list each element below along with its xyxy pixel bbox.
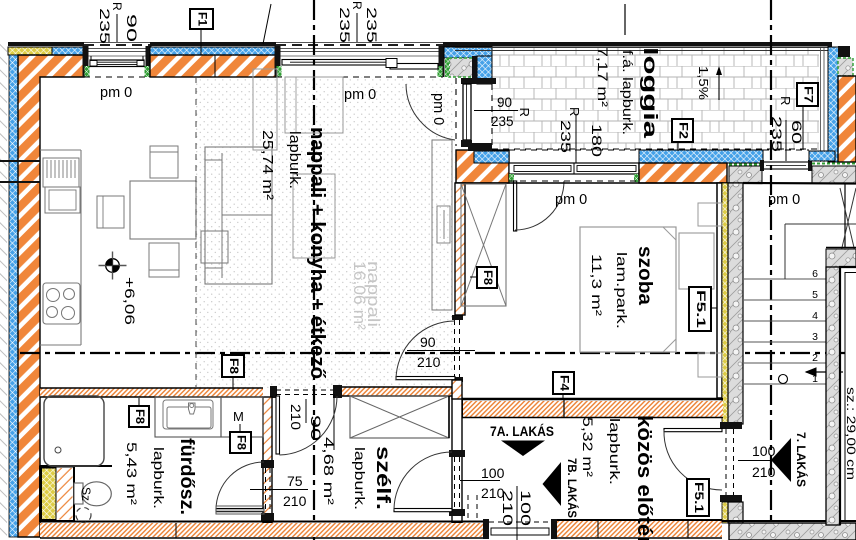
svg-text:210: 210 bbox=[283, 493, 307, 509]
svg-text:F2: F2 bbox=[677, 122, 691, 139]
svg-text:szélf.: szélf. bbox=[372, 446, 393, 510]
svg-text:7B. LAKÁS: 7B. LAKÁS bbox=[565, 458, 578, 518]
svg-text:5,32 m²: 5,32 m² bbox=[580, 417, 596, 477]
svg-text:f.á. lapburk.: f.á. lapburk. bbox=[620, 50, 636, 135]
svg-text:100: 100 bbox=[481, 465, 505, 481]
svg-text:7A. LAKÁS: 7A. LAKÁS bbox=[490, 423, 554, 439]
svg-text:235: 235 bbox=[769, 116, 784, 152]
svg-text:210: 210 bbox=[500, 490, 516, 526]
svg-text:1,5%: 1,5% bbox=[696, 66, 711, 100]
svg-text:90: 90 bbox=[420, 334, 436, 350]
svg-text:loggia: loggia bbox=[639, 47, 660, 139]
svg-text:+6,06: +6,06 bbox=[122, 277, 138, 325]
svg-text:pm 0: pm 0 bbox=[344, 87, 376, 103]
svg-text:2: 2 bbox=[812, 352, 818, 364]
svg-text:7. LAKÁS: 7. LAKÁS bbox=[794, 432, 807, 487]
svg-text:16,06 m²: 16,06 m² bbox=[350, 261, 369, 330]
svg-text:6: 6 bbox=[812, 268, 818, 280]
svg-text:F8: F8 bbox=[235, 435, 249, 450]
svg-text:lam.park.: lam.park. bbox=[614, 252, 630, 329]
svg-text:R: R bbox=[778, 96, 793, 105]
svg-text:lapburk.: lapburk. bbox=[352, 447, 368, 510]
svg-text:F8: F8 bbox=[133, 409, 147, 424]
svg-text:lapburk.: lapburk. bbox=[607, 418, 623, 485]
svg-text:F1: F1 bbox=[196, 12, 210, 26]
svg-text:F8: F8 bbox=[481, 270, 495, 285]
svg-text:Sz: Sz bbox=[79, 487, 93, 501]
svg-text:sz.: 29,00 cm: sz.: 29,00 cm bbox=[844, 387, 856, 480]
svg-text:F5.1: F5.1 bbox=[692, 482, 706, 513]
svg-text:100: 100 bbox=[518, 490, 534, 526]
svg-text:5,43 m²: 5,43 m² bbox=[124, 442, 140, 505]
svg-text:235: 235 bbox=[491, 114, 514, 129]
svg-text:F8: F8 bbox=[227, 358, 241, 374]
svg-text:4,68 m²: 4,68 m² bbox=[321, 437, 337, 505]
svg-text:100: 100 bbox=[752, 443, 776, 459]
svg-text:lapburk.: lapburk. bbox=[286, 131, 302, 189]
svg-text:90: 90 bbox=[497, 95, 512, 110]
svg-text:4: 4 bbox=[812, 310, 818, 322]
svg-text:pm 0: pm 0 bbox=[555, 192, 587, 208]
svg-text:11,3 m²: 11,3 m² bbox=[589, 254, 605, 316]
svg-text:lapburk.: lapburk. bbox=[151, 447, 167, 509]
svg-text:pm 0: pm 0 bbox=[430, 93, 446, 125]
svg-text:R: R bbox=[567, 107, 582, 116]
svg-text:pm 0: pm 0 bbox=[100, 85, 132, 101]
svg-text:közös előtér: közös előtér bbox=[633, 415, 655, 540]
svg-text:210: 210 bbox=[417, 354, 441, 370]
svg-text:235: 235 bbox=[364, 7, 379, 43]
svg-text:210: 210 bbox=[752, 464, 776, 480]
svg-text:F5.1: F5.1 bbox=[694, 290, 708, 329]
svg-text:pm 0: pm 0 bbox=[768, 192, 800, 208]
svg-text:fürdősz.: fürdősz. bbox=[176, 438, 197, 515]
svg-text:75: 75 bbox=[287, 473, 303, 489]
svg-text:235: 235 bbox=[97, 8, 112, 44]
svg-text:210: 210 bbox=[288, 404, 303, 430]
svg-text:3: 3 bbox=[812, 331, 818, 343]
svg-text:F7: F7 bbox=[802, 86, 816, 103]
svg-text:90: 90 bbox=[308, 415, 323, 441]
svg-text:nappali + konyha + étkező: nappali + konyha + étkező bbox=[306, 127, 328, 379]
svg-text:M: M bbox=[233, 409, 244, 424]
svg-text:180: 180 bbox=[589, 124, 604, 157]
svg-text:7,17 m²: 7,17 m² bbox=[595, 47, 611, 107]
svg-text:F4: F4 bbox=[558, 375, 572, 391]
svg-text:25,74 m²: 25,74 m² bbox=[259, 130, 276, 200]
svg-text:60: 60 bbox=[789, 120, 804, 144]
svg-text:5: 5 bbox=[812, 289, 818, 301]
svg-text:szoba: szoba bbox=[634, 246, 655, 305]
svg-text:235: 235 bbox=[337, 7, 352, 43]
svg-text:235: 235 bbox=[558, 120, 573, 153]
svg-text:90: 90 bbox=[124, 14, 139, 42]
svg-text:R: R bbox=[517, 108, 532, 117]
